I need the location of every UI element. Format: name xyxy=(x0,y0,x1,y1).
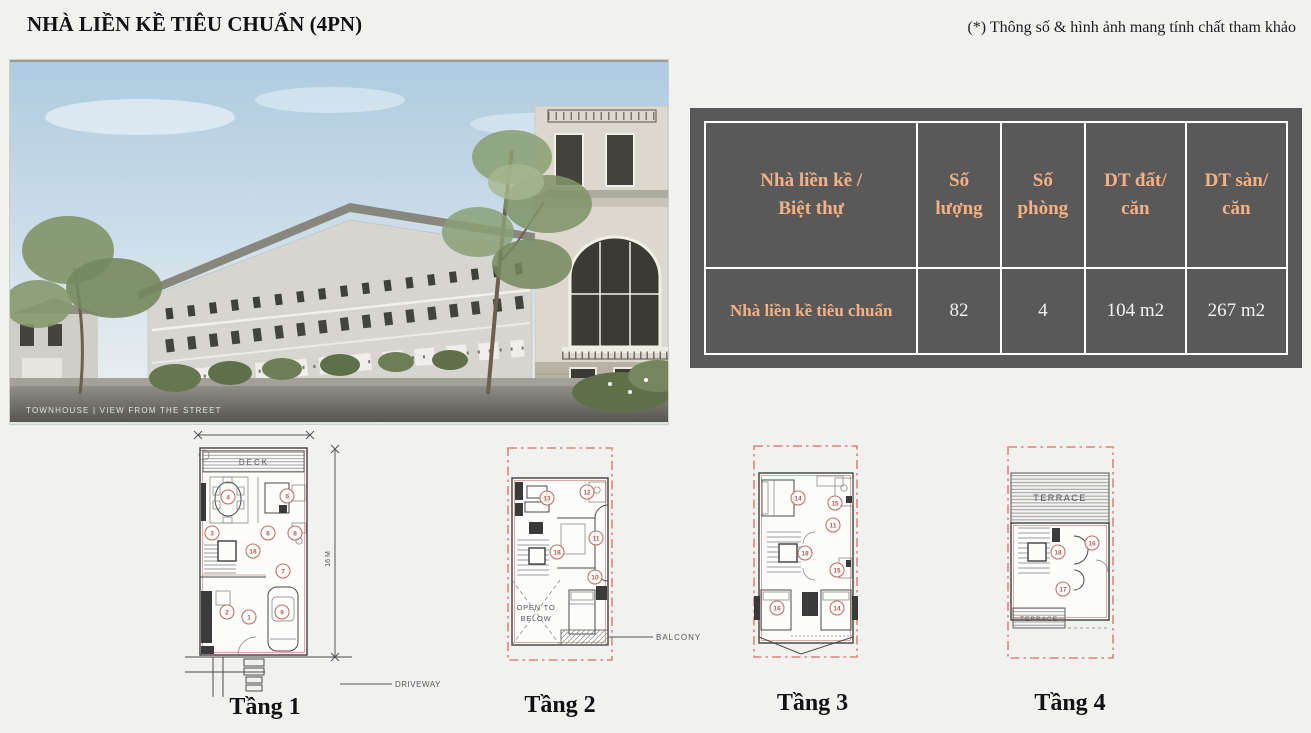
balcony-label: BALCONY xyxy=(656,633,701,642)
floor-plan-4: TERRACE TERRACE 16 18 17 xyxy=(1000,440,1210,692)
svg-text:16: 16 xyxy=(773,605,781,612)
floor-plan-1: 16 M DECK xyxy=(180,425,465,703)
svg-text:3: 3 xyxy=(210,530,214,537)
townhouse-rendering: TOWNHOUSE | VIEW FROM THE STREET xyxy=(10,60,668,424)
col-header-rooms: Số phòng xyxy=(1001,122,1085,268)
svg-text:15: 15 xyxy=(831,500,839,507)
cell-floor-area: 267 m2 xyxy=(1186,268,1287,354)
svg-text:9: 9 xyxy=(280,609,284,616)
svg-text:18: 18 xyxy=(249,548,257,555)
floor-plan-2: OPEN TO BELOW BALCONY 13 12 11 18 10 xyxy=(495,440,710,692)
col-header-type: Nhà liền kề / Biệt thự xyxy=(705,122,917,268)
svg-text:15: 15 xyxy=(833,567,841,574)
slide: NHÀ LIỀN KỀ TIÊU CHUẨN (4PN) (*) Thông s… xyxy=(0,0,1311,733)
floor-plan-3: 14 15 11 18 15 16 14 xyxy=(745,440,945,692)
svg-text:1: 1 xyxy=(247,614,251,621)
svg-text:10: 10 xyxy=(591,574,599,581)
svg-text:14: 14 xyxy=(833,605,841,612)
driveway-label: DRIVEWAY xyxy=(395,680,441,689)
table-row: Nhà liền kề tiêu chuẩn 82 4 104 m2 267 m… xyxy=(705,268,1287,354)
cell-type-name: Nhà liền kề tiêu chuẩn xyxy=(705,268,917,354)
cell-land-area: 104 m2 xyxy=(1085,268,1186,354)
floor-label-4: Tầng 4 xyxy=(985,690,1155,717)
photo-caption: TOWNHOUSE | VIEW FROM THE STREET xyxy=(26,406,222,415)
svg-text:6: 6 xyxy=(266,530,270,537)
open-to-below-line2: BELOW xyxy=(520,614,551,623)
svg-text:18: 18 xyxy=(1054,549,1062,556)
cell-rooms: 4 xyxy=(1001,268,1085,354)
open-to-below-line1: OPEN TO xyxy=(516,603,555,612)
svg-text:18: 18 xyxy=(801,550,809,557)
terrace-bottom-label: TERRACE xyxy=(1020,616,1058,623)
disclaimer-note: (*) Thông số & hình ảnh mang tính chất t… xyxy=(967,19,1296,37)
svg-text:18: 18 xyxy=(553,549,561,556)
col-header-floor-area: DT sàn/ căn xyxy=(1186,122,1287,268)
svg-text:12: 12 xyxy=(583,489,591,496)
svg-text:13: 13 xyxy=(543,495,551,502)
svg-text:16: 16 xyxy=(1088,540,1096,547)
svg-text:5: 5 xyxy=(285,493,289,500)
floor-label-3: Tầng 3 xyxy=(730,690,895,717)
svg-text:17: 17 xyxy=(1059,586,1067,593)
spec-table-panel: Nhà liền kề / Biệt thự Số lượng Số phòng… xyxy=(690,108,1302,368)
spec-table: Nhà liền kề / Biệt thự Số lượng Số phòng… xyxy=(704,121,1288,355)
cell-quantity: 82 xyxy=(917,268,1000,354)
col-header-quantity: Số lượng xyxy=(917,122,1000,268)
height-dimension: 16 M xyxy=(325,551,332,567)
svg-text:2: 2 xyxy=(225,609,229,616)
floor-label-1: Tầng 1 xyxy=(180,694,350,721)
floor-label-2: Tầng 2 xyxy=(480,692,640,719)
townhouse-rendering-art: TOWNHOUSE | VIEW FROM THE STREET xyxy=(10,62,668,422)
svg-text:14: 14 xyxy=(794,495,802,502)
svg-text:4: 4 xyxy=(226,494,230,501)
col-header-land-area: DT đất/ căn xyxy=(1085,122,1186,268)
deck-label: DECK xyxy=(239,458,269,467)
svg-text:8: 8 xyxy=(293,530,297,537)
page-title: NHÀ LIỀN KỀ TIÊU CHUẨN (4PN) xyxy=(27,12,362,37)
svg-text:11: 11 xyxy=(593,535,600,542)
terrace-top-label: TERRACE xyxy=(1033,493,1087,503)
svg-text:11: 11 xyxy=(830,522,837,529)
svg-text:7: 7 xyxy=(281,568,285,575)
